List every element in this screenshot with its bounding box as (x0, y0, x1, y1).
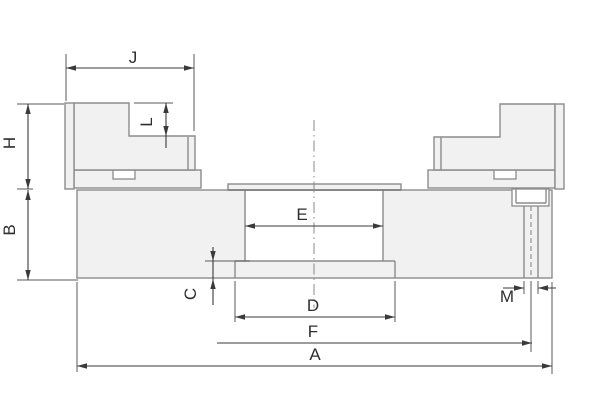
dim-label-A: A (309, 345, 321, 364)
dim-B-arrow-bottom (25, 270, 30, 280)
right-jaw-base (428, 170, 555, 188)
dim-label-D: D (307, 296, 319, 315)
dim-H-arrow-bottom (25, 179, 30, 189)
dim-D-arrow-left (235, 314, 245, 319)
dim-M-arrow-right (538, 285, 548, 290)
dim-M-arrow-left (514, 285, 524, 290)
dim-H: H (0, 104, 64, 189)
dim-C-arrow-bottom (210, 279, 215, 289)
dim-label-H: H (0, 137, 19, 149)
left-jaw-body (74, 103, 195, 170)
right-jaw-base-notch (494, 170, 516, 179)
left-jaw-base-notch (113, 170, 135, 179)
dim-L-arrow-bottom (163, 126, 168, 136)
dim-label-E: E (296, 205, 307, 224)
left-jaw (65, 103, 201, 189)
left-jaw-base (74, 170, 201, 188)
dim-L-arrow-top (163, 103, 168, 113)
dim-A-arrow-left (77, 363, 87, 368)
dim-label-F: F (308, 322, 318, 341)
right-jaw-body (434, 104, 555, 170)
dim-J-arrow-right (184, 65, 194, 70)
dim-B-arrow-top (25, 190, 30, 200)
dim-D: D (235, 281, 395, 322)
dim-label-C: C (181, 288, 200, 300)
dim-J-arrow-left (66, 65, 76, 70)
dim-label-J: J (129, 48, 138, 67)
left-jaw-face-plate (65, 103, 74, 189)
technical-drawing: J H B L E C (0, 0, 613, 414)
right-jaw-face-plate (555, 104, 564, 189)
dim-A-arrow-right (542, 363, 552, 368)
drawing-canvas: J H B L E C (0, 0, 613, 414)
dim-label-M: M (500, 287, 514, 306)
dim-H-arrow-top (25, 104, 30, 114)
dim-B: B (0, 190, 78, 280)
right-jaw (428, 104, 564, 189)
dim-label-L: L (137, 117, 156, 126)
dim-label-B: B (0, 224, 19, 235)
dim-D-arrow-right (385, 314, 395, 319)
dim-M: M (500, 281, 556, 306)
